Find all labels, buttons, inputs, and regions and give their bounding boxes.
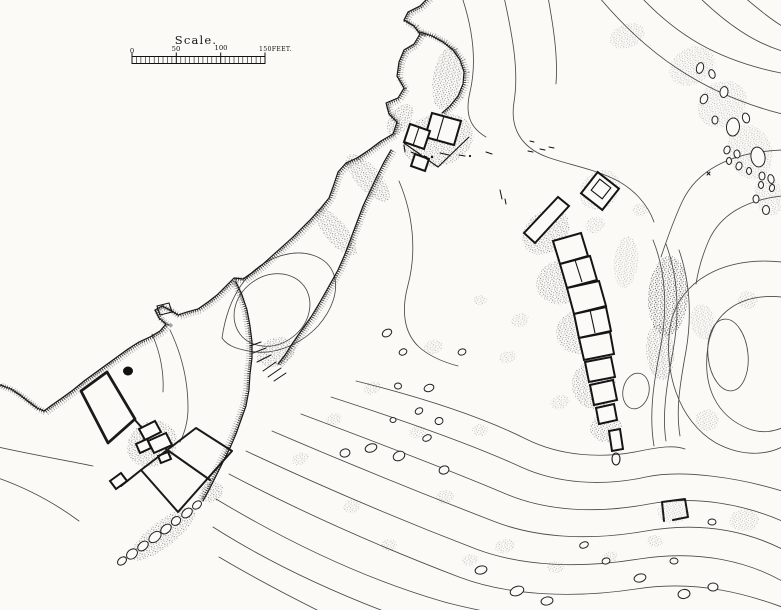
stipple-patch — [632, 204, 648, 216]
stipple-patch — [421, 337, 445, 357]
rock — [759, 182, 764, 189]
survey-map-sheet: Scale. 0 50 100 150FEET. — [0, 0, 781, 610]
stipple-patch — [289, 450, 310, 467]
coastline — [0, 0, 467, 413]
south-shore — [201, 281, 253, 501]
stipple-patch — [381, 539, 397, 551]
contour-line — [152, 334, 163, 392]
rock — [457, 348, 467, 356]
rock — [395, 383, 402, 389]
contour-line — [462, 0, 486, 137]
rock — [434, 417, 444, 426]
contour-line — [170, 330, 188, 442]
stipple-patch — [325, 411, 344, 427]
ruin-room — [590, 380, 617, 405]
rock — [763, 206, 770, 215]
stipple-patch — [646, 255, 690, 337]
ruin-room — [596, 404, 617, 424]
contour-line — [0, 447, 93, 466]
contour-line — [399, 181, 458, 366]
stipple-patch — [509, 311, 530, 329]
dark-pond — [123, 367, 133, 376]
contour-line — [548, 0, 557, 84]
stipple-patch — [612, 235, 640, 289]
rock — [670, 558, 678, 564]
scale-end-label: 150FEET. — [259, 46, 292, 53]
rock — [423, 383, 435, 393]
rock — [398, 348, 408, 357]
stipple-patch — [341, 497, 362, 515]
stipple-patch — [472, 424, 488, 436]
scale-tick-label: 100 — [215, 44, 228, 52]
stipple-patch — [547, 561, 565, 573]
stipple-patch — [548, 392, 572, 412]
stipple-patch — [498, 349, 518, 365]
stipple-patch — [738, 291, 758, 309]
rock — [727, 158, 732, 165]
stipple-patch — [729, 509, 759, 531]
scale-bar-minor-ticks — [136, 57, 260, 64]
rock — [390, 418, 396, 423]
map-canvas: Scale. 0 50 100 150FEET. — [0, 0, 781, 610]
contour-line — [744, 0, 781, 26]
cliff-hachure-band — [1, 0, 431, 413]
stipple-patch — [606, 19, 648, 54]
rock — [414, 406, 424, 415]
contour-line — [707, 296, 781, 431]
rock — [509, 584, 525, 597]
rock — [677, 589, 690, 600]
contour-line — [356, 381, 685, 455]
stipple-patch — [428, 44, 467, 112]
stipple-patch — [361, 379, 382, 396]
rock — [540, 596, 553, 606]
rock — [392, 449, 407, 462]
rock — [753, 195, 759, 203]
rock — [579, 541, 590, 550]
end-chamber — [609, 429, 623, 451]
rock — [741, 112, 750, 123]
hollow-contour — [620, 371, 653, 412]
rock — [339, 448, 351, 458]
walled-enclosure — [81, 372, 135, 443]
stipple-patch — [461, 553, 479, 568]
rock — [708, 519, 716, 525]
rock — [633, 573, 647, 584]
field-divider-wall — [166, 449, 210, 480]
rock — [708, 583, 718, 591]
rock — [474, 565, 488, 576]
stipple-patch — [688, 302, 718, 342]
rock — [116, 555, 128, 567]
rock — [712, 116, 718, 124]
rock — [747, 168, 752, 175]
hut-cluster-north — [157, 113, 469, 315]
stipple-patch — [308, 202, 363, 262]
contour-line — [246, 451, 781, 581]
rock — [708, 69, 717, 80]
stipple-vegetation — [118, 19, 781, 573]
ruin-room — [579, 332, 614, 360]
rock — [438, 465, 450, 476]
outbuilding — [110, 473, 127, 489]
rock — [769, 184, 775, 192]
ruin-room — [585, 357, 615, 382]
rock — [733, 150, 740, 159]
stipple-patch — [647, 535, 663, 547]
stipple-patch — [583, 214, 607, 236]
contour-line — [219, 557, 321, 610]
cliff-hachure-band — [201, 281, 250, 500]
rock — [381, 327, 393, 338]
contour-line — [216, 499, 488, 610]
contour-line — [0, 478, 79, 521]
stipple-patch — [473, 295, 487, 305]
contour-line — [699, 0, 781, 51]
rock — [759, 172, 765, 180]
stipple-patch — [494, 537, 517, 556]
stipple-patch — [434, 488, 455, 506]
rocky-point — [116, 499, 203, 567]
stipple-patch — [695, 409, 719, 431]
scale-bar: Scale. 0 50 100 150FEET. — [130, 33, 292, 64]
scale-tick-label: 50 — [172, 45, 181, 53]
scale-title: Scale. — [175, 33, 218, 47]
rock — [364, 442, 378, 454]
